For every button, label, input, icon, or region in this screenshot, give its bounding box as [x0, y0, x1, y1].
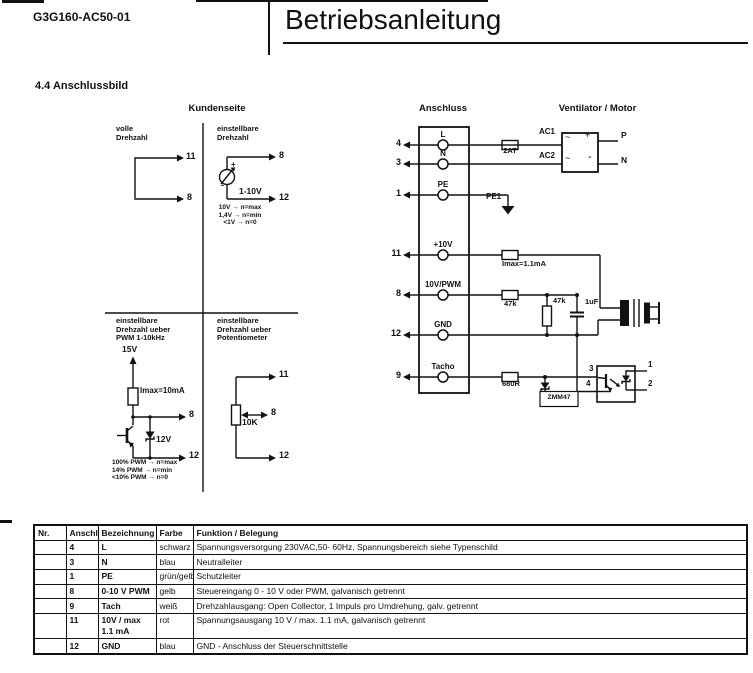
adj-pot-pin-bottom: 12 [279, 451, 289, 461]
adj-voltage-pin-bottom: 12 [279, 193, 289, 203]
col-header-bezeichnung: Bezeichnung [98, 525, 156, 540]
col-header-nr: Nr. [34, 525, 66, 540]
cell-nr [34, 639, 66, 654]
adj-pwm-pin-top: 8 [189, 410, 194, 420]
fuse-label: 2AT [500, 147, 520, 155]
source-plus-sign: + [231, 161, 236, 170]
adj-pot-label: einstellbare Drehzahl ueber Potentiomete… [217, 317, 271, 343]
cell-anschl: 9 [66, 599, 98, 614]
col-header-anschl: Anschl. [66, 525, 98, 540]
terminal-name-l: L [411, 131, 475, 140]
terminal-name-tacho: Tacho [411, 363, 475, 372]
zener-zmm47-label: ZMM47 [541, 394, 577, 401]
table-row: 11 10V / max 1.1 mA rot Spannungsausgang… [34, 613, 747, 638]
adj-voltage-notes: 10V → n=max 1,4V → n=min <1V → n=0 [209, 204, 271, 227]
table-row: 1 PE grün/gelb Schutzleiter [34, 569, 747, 584]
r-shunt-label: 47k [553, 297, 566, 305]
terminal-name-gnd: GND [411, 321, 475, 330]
opto-pin-3: 3 [589, 365, 593, 374]
cell-anschl: 12 [66, 639, 98, 654]
bridge-ac-bottom: ~ [565, 154, 570, 164]
adj-voltage-pin-top: 8 [279, 151, 284, 161]
terminal-name-10v: +10V [411, 241, 475, 250]
bridge-minus: - [588, 152, 592, 164]
col-header-funktion: Funktion / Belegung [193, 525, 747, 540]
pe1-label: PE1 [486, 193, 501, 202]
cell-bezeichnung: GND [98, 639, 156, 654]
table-row: 4 L schwarz Spannungsversorgung 230VAC,5… [34, 540, 747, 555]
terminal-num-12: 12 [381, 329, 401, 339]
pwm-resistor-label: Imax=10mA [140, 387, 185, 396]
cap-label: 1uF [585, 298, 598, 306]
terminal-num-11: 11 [381, 249, 401, 259]
cell-funktion: Neutralleiter [193, 555, 747, 570]
quadrant-dividers [105, 123, 298, 492]
cell-anschl: 8 [66, 584, 98, 599]
cell-funktion: GND - Anschluss der Steuerschnittstelle [193, 639, 747, 654]
terminal-block [403, 127, 469, 393]
terminal-num-1: 1 [381, 189, 401, 199]
pot-value-label: 10K [242, 418, 258, 427]
opto-pin-4: 4 [586, 380, 590, 389]
adj-pot-pin-mid: 8 [271, 408, 276, 418]
bridge-plus: + [585, 131, 590, 141]
full-speed-pin-top: 11 [186, 152, 196, 162]
cell-bezeichnung: 0-10 V PWM [98, 584, 156, 599]
cell-funktion: Drehzahlausgang: Open Collector, 1 Impul… [193, 599, 747, 614]
terminal-num-9: 9 [381, 371, 401, 381]
cell-anschl: 4 [66, 540, 98, 555]
cell-bezeichnung: Tach [98, 599, 156, 614]
cell-bezeichnung: PE [98, 569, 156, 584]
cell-farbe: blau [156, 639, 193, 654]
cell-nr [34, 569, 66, 584]
full-speed-label: volle Drehzahl [116, 125, 148, 142]
cell-bezeichnung: 10V / max 1.1 mA [98, 613, 156, 638]
cell-funktion: Spannungsversorgung 230VAC,50- 60Hz, Spa… [193, 540, 747, 555]
bridge-ac-top: ~ [565, 133, 570, 143]
cell-nr [34, 613, 66, 638]
adj-pwm-pin-bottom: 12 [189, 451, 199, 461]
motor-p-label: P [621, 131, 627, 140]
cell-nr [34, 555, 66, 570]
cell-bezeichnung: L [98, 540, 156, 555]
scan-mark-left-margin [0, 520, 12, 523]
cell-farbe: schwarz [156, 540, 193, 555]
adj-pwm-notes: 100% PWM → n=max 14% PWM → n=min <10% PW… [112, 459, 177, 482]
cell-funktion: Spannungsausgang 10 V / max. 1.1 mA, gal… [193, 613, 747, 638]
pwm-supply-label: 15V [122, 345, 137, 354]
opto-pin-2: 2 [648, 380, 652, 389]
cell-farbe: rot [156, 613, 193, 638]
cell-nr [34, 599, 66, 614]
zener-zmm47-icon [541, 377, 550, 392]
motor-title: Ventilator / Motor [550, 104, 645, 114]
col-header-farbe: Farbe [156, 525, 193, 540]
zener-12v-icon [146, 417, 155, 458]
ac1-label: AC1 [539, 128, 555, 137]
terminal-block-title: Anschluss [411, 104, 475, 114]
adj-pwm-label: einstellbare Drehzahl ueber PWM 1-10kHz [116, 317, 170, 343]
terminal-num-4: 4 [381, 139, 401, 149]
r-series-label: 47k [504, 300, 517, 308]
cell-bezeichnung: N [98, 555, 156, 570]
mains-wiring [419, 133, 618, 215]
opto-pin-1: 1 [648, 361, 652, 370]
cell-funktion: Schutzleiter [193, 569, 747, 584]
capacitor-1uf-icon [570, 295, 584, 335]
table-row: 9 Tach weiß Drehzahlausgang: Open Collec… [34, 599, 747, 614]
pwm-zener-label: 12V [156, 435, 171, 444]
cell-anschl: 1 [66, 569, 98, 584]
cell-nr [34, 540, 66, 555]
manual-page: G3G160-AC50-01 Betriebsanleitung 4.4 Ans… [0, 0, 753, 673]
table-header-row: Nr. Anschl. Bezeichnung Farbe Funktion /… [34, 525, 747, 540]
terminal-name-pe: PE [411, 181, 475, 190]
resistor-47k-shunt-icon [543, 306, 552, 326]
source-range-label: 1-10V [239, 187, 262, 196]
ac2-label: AC2 [539, 152, 555, 161]
terminal-name-pwm: 10V/PWM [411, 281, 475, 290]
table-row: 8 0-10 V PWM gelb Steuereingang 0 - 10 V… [34, 584, 747, 599]
transistor-icon [117, 426, 134, 448]
cell-farbe: grün/gelb [156, 569, 193, 584]
potentiometer-10k-icon [232, 405, 241, 425]
cell-nr [34, 584, 66, 599]
table-row: 3 N blau Neutralleiter [34, 555, 747, 570]
pwm-circuit [117, 357, 186, 462]
connection-table: Nr. Anschl. Bezeichnung Farbe Funktion /… [33, 524, 748, 655]
cell-anschl: 11 [66, 613, 98, 638]
full-speed-pin-bottom: 8 [187, 193, 192, 203]
terminal-num-8: 8 [381, 289, 401, 299]
cable-connector-icon [620, 299, 659, 327]
cell-funktion: Steuereingang 0 - 10 V oder PWM, galvani… [193, 584, 747, 599]
motor-n-label: N [621, 156, 627, 165]
source-minus-sign: - [221, 181, 224, 191]
r10v-label: Imax=1.1mA [502, 260, 546, 268]
adj-pot-pin-top: 11 [279, 370, 289, 380]
resistor-imax10ma-icon [128, 388, 138, 405]
optocoupler-icon [597, 366, 647, 402]
earth-ground-icon [502, 206, 515, 215]
full-speed-circuit [135, 155, 184, 203]
terminal-contacts [438, 140, 448, 382]
cell-farbe: gelb [156, 584, 193, 599]
terminal-name-n: N [411, 150, 475, 159]
cell-farbe: blau [156, 555, 193, 570]
customer-side-title: Kundenseite [180, 104, 254, 114]
table-row: 12 GND blau GND - Anschluss der Steuersc… [34, 639, 747, 654]
wiring-diagram [0, 0, 753, 520]
r-tacho-label: 680R [502, 380, 520, 388]
terminal-num-3: 3 [381, 158, 401, 168]
cell-anschl: 3 [66, 555, 98, 570]
cell-farbe: weiß [156, 599, 193, 614]
adj-voltage-label: einstellbare Drehzahl [217, 125, 259, 142]
